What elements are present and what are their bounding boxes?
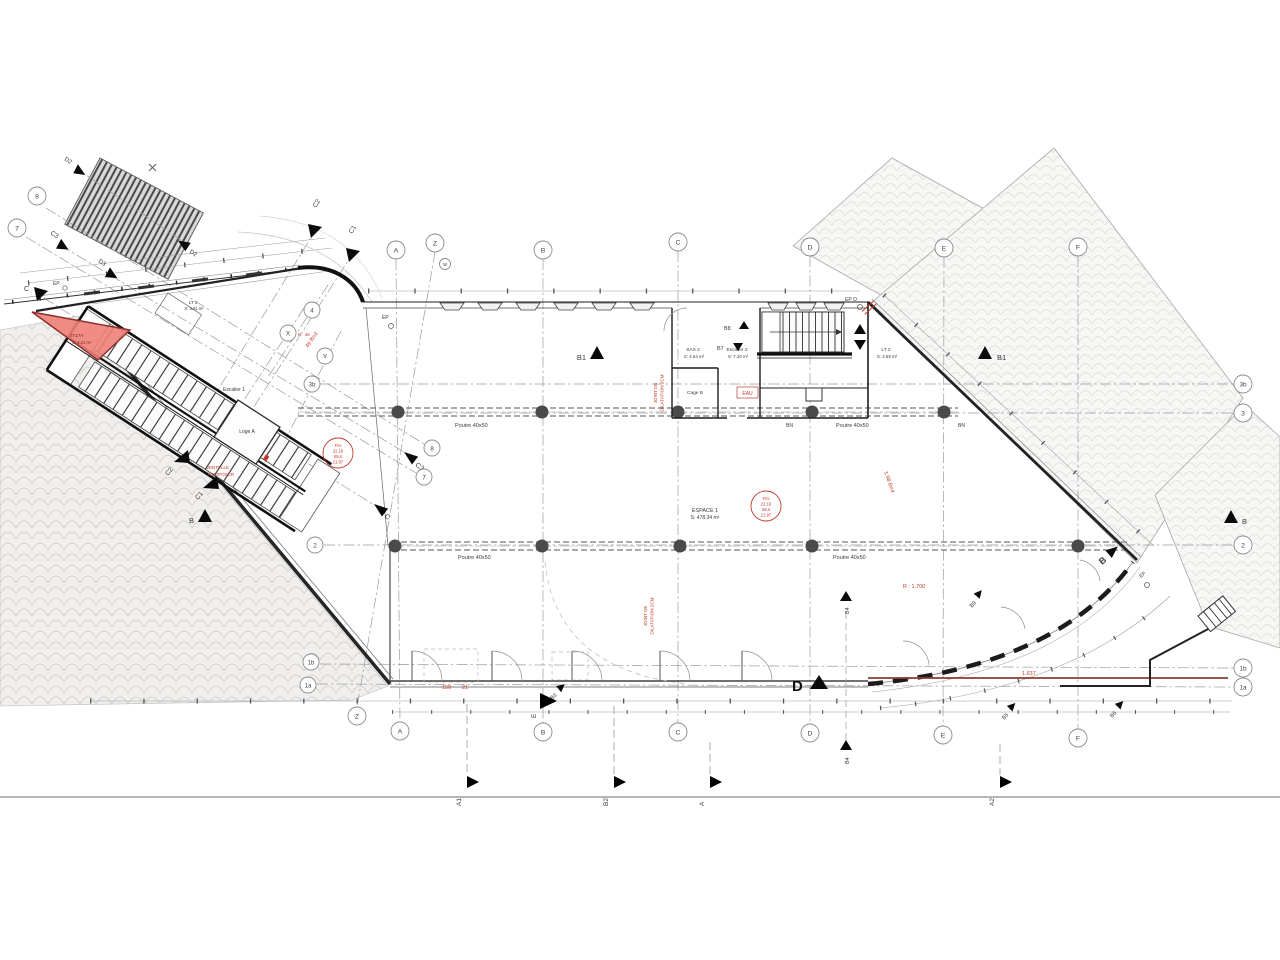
level-fini-value: 22.16 bbox=[761, 502, 772, 507]
marker-b8: B8 bbox=[724, 326, 731, 332]
marker-c2-top: C2 bbox=[312, 198, 323, 209]
grid-bubble-bot-f: F bbox=[1076, 736, 1080, 743]
joint-text: JOINT DE bbox=[653, 383, 658, 404]
grid-bubble-left-7: 7 bbox=[15, 226, 19, 233]
level-198: 1.98 Brut bbox=[882, 471, 895, 494]
grid-bubble-bot-z: Z bbox=[355, 714, 359, 721]
column bbox=[674, 540, 687, 553]
joint-dilatation-1: JOINT DE DILATATION 2CM bbox=[653, 374, 665, 411]
lt1-area: S: 3.61 m² bbox=[184, 306, 204, 311]
floor-plan-canvas: Poutre 40x50 Poutre 40x50 Poutre 40x50 P… bbox=[0, 0, 1280, 960]
grid-bubble-right-3b: 3b bbox=[1239, 382, 1247, 389]
grid-bubble-mid-7: 7 bbox=[422, 475, 426, 482]
svg-text:B9: B9 bbox=[969, 600, 978, 609]
section-label-b2: B2 bbox=[603, 798, 610, 806]
grid-bubble-bot-e: E bbox=[941, 733, 946, 740]
svg-text:B4: B4 bbox=[845, 757, 851, 764]
bn-label: BN bbox=[786, 423, 793, 429]
grid-bubble-top-b: B bbox=[541, 248, 546, 255]
floor-plan-drawing: Poutre 40x50 Poutre 40x50 Poutre 40x50 P… bbox=[0, 0, 1280, 960]
bottom-section-cuts: A1 B2 A A2 bbox=[0, 704, 1280, 806]
joint-text: JOINT DE bbox=[643, 606, 648, 627]
demo-area: S: 3.21 m² bbox=[72, 340, 92, 345]
espace1-area: S: 478.34 m² bbox=[691, 515, 720, 521]
joint-text: DILATATION 2CM bbox=[650, 597, 655, 634]
ep-o-label: EP O bbox=[845, 297, 857, 303]
ventelle-note-1: VENTELLE bbox=[206, 465, 229, 470]
ventelle-note-2: A DEPOSER bbox=[208, 472, 235, 477]
lt2-name: LT 2 bbox=[881, 347, 890, 353]
beam-label: Poutre 40x50 bbox=[836, 423, 869, 429]
level-brut: Brut bbox=[762, 507, 771, 512]
loge-a-label: Loge A bbox=[239, 429, 255, 435]
grid-bubble-right-1a: 1a bbox=[1239, 685, 1247, 692]
grid-bubble-mid-3b: 3b bbox=[309, 383, 316, 389]
eau-note: EAU bbox=[737, 387, 758, 398]
k46-note: K : 46 bbox=[298, 332, 310, 337]
bn-label: BN bbox=[958, 423, 965, 429]
roof-building bbox=[65, 158, 204, 279]
beam-label: Poutre 40x50 bbox=[455, 423, 488, 429]
column bbox=[806, 540, 819, 553]
marker-b7: B7 bbox=[717, 346, 724, 352]
svg-text:E: E bbox=[531, 713, 538, 718]
marker-b9: B9 bbox=[966, 588, 987, 610]
lt2-area: S: 4.59 m² bbox=[877, 354, 898, 359]
marker-b1-right: B1 bbox=[997, 353, 1006, 362]
grid-bubble-mid-2: 2 bbox=[313, 543, 317, 550]
column bbox=[672, 406, 685, 419]
grid-bubble-mid-x: X bbox=[286, 331, 291, 338]
beam-label: Poutre 40x50 bbox=[458, 555, 491, 561]
marker-d2-top: D2 bbox=[61, 157, 88, 180]
grid-bubble-mid-8: 8 bbox=[430, 446, 434, 453]
grid-bubble-bot-a: A bbox=[398, 729, 403, 736]
grid-bubble-top-w: w bbox=[443, 262, 447, 268]
grid-bubble-top-e: E bbox=[942, 246, 947, 253]
svg-text:D2: D2 bbox=[188, 249, 198, 259]
marker-b4-lower: B4 bbox=[845, 757, 851, 764]
marker-e: E bbox=[531, 713, 538, 718]
section-label-a2: A2 bbox=[989, 798, 996, 806]
marker-b6: B6 bbox=[1106, 698, 1127, 719]
marker-b1-left: B1 bbox=[577, 353, 586, 362]
beam-1 bbox=[298, 406, 958, 419]
espace1-name: ESPACE 1 bbox=[692, 508, 719, 514]
sas2-name: SAS 2 bbox=[686, 347, 700, 353]
level-fini: Fini bbox=[335, 443, 342, 448]
grid-bubble-right-1b: 1b bbox=[1239, 666, 1247, 673]
grid-bubble-right-3: 3 bbox=[1241, 411, 1245, 418]
column bbox=[1072, 540, 1085, 553]
marker-d-big: D bbox=[792, 678, 803, 695]
joint-dilatation-2: JOINT DE DILATATION 2CM bbox=[643, 597, 655, 634]
svg-text:EAU: EAU bbox=[742, 391, 753, 397]
dim-21: 21 bbox=[462, 685, 468, 691]
marker-c-topleft: C bbox=[24, 286, 29, 293]
level-fini: Fini bbox=[763, 496, 770, 501]
radius-note: R : 1.700 bbox=[903, 584, 925, 590]
marker-b-rotated: B bbox=[1097, 554, 1109, 566]
grid-bubble-bot-d: D bbox=[808, 731, 813, 738]
roof-antenna-icon bbox=[149, 164, 156, 171]
svg-text:D3: D3 bbox=[97, 259, 107, 269]
escalier2-area: S: 7.20 m² bbox=[728, 354, 749, 359]
svg-text:B5: B5 bbox=[1001, 712, 1010, 721]
facade-windows bbox=[84, 273, 844, 310]
column bbox=[938, 406, 951, 419]
svg-text:C: C bbox=[383, 513, 391, 522]
svg-text:D2: D2 bbox=[63, 157, 73, 167]
level-fini-value: 22.16 bbox=[333, 449, 344, 454]
grid-bubble-top-a: A bbox=[394, 248, 399, 255]
grid-bubble-top-z: Z bbox=[433, 241, 437, 248]
svg-text:C2: C2 bbox=[312, 198, 323, 209]
joint-text: DILATATION 2CM bbox=[660, 374, 665, 411]
svg-text:1.98 Brut: 1.98 Brut bbox=[882, 471, 895, 494]
beam-2 bbox=[389, 540, 1131, 553]
grid-bubble-top-f: F bbox=[1076, 245, 1080, 252]
demo-name: 2T17A bbox=[70, 333, 83, 338]
column bbox=[536, 406, 549, 419]
grid-bubble-left-8: 8 bbox=[35, 194, 39, 201]
ep-label: EP bbox=[1138, 570, 1147, 579]
dim-1637: 1.637 bbox=[1022, 671, 1036, 677]
svg-text:C1: C1 bbox=[348, 224, 359, 235]
grid-bubble-bot-c: C bbox=[676, 730, 681, 737]
marker-c1-top: C1 bbox=[348, 224, 359, 235]
section-label-a: A bbox=[699, 801, 706, 806]
ep-label: EP bbox=[53, 281, 60, 287]
level-circle-2: Fini 22.16 Brut 21.97 bbox=[751, 491, 781, 521]
marker-b5: B5 bbox=[998, 700, 1019, 721]
marker-c-mid: C bbox=[370, 500, 393, 522]
marker-b-right: B bbox=[1242, 517, 1247, 526]
svg-text:C3: C3 bbox=[49, 230, 60, 241]
grid-bubble-top-c: C bbox=[676, 240, 681, 247]
column bbox=[536, 540, 549, 553]
grid-bubble-bot-b: B bbox=[541, 730, 546, 737]
level-circle-1: Fini 22.16 Brut 21.97 bbox=[323, 438, 353, 468]
grid-bubble-right-2: 2 bbox=[1241, 543, 1245, 550]
escalier1-label: Escalier 1 bbox=[223, 387, 245, 393]
grid-bubble-mid-1b: 1b bbox=[308, 661, 315, 667]
stair-escalier-2 bbox=[757, 312, 852, 358]
ep-label: EP bbox=[382, 315, 389, 321]
cage-b-label: Cage B bbox=[687, 390, 703, 396]
column bbox=[392, 406, 405, 419]
beam-label: Poutre 40x50 bbox=[833, 555, 866, 561]
level-brut-value: 21.97 bbox=[333, 460, 344, 465]
section-label-a1: A1 bbox=[456, 798, 463, 806]
level-brut: Brut bbox=[334, 454, 343, 459]
sas2-area: S: 4.64 m² bbox=[684, 354, 705, 359]
grid-bubble-top-d: D bbox=[808, 245, 813, 252]
marker-b-left: B bbox=[189, 516, 194, 525]
lt1-name: LT 1 bbox=[189, 300, 198, 305]
column bbox=[806, 406, 819, 419]
level-brut-value: 21.97 bbox=[761, 513, 772, 518]
grid-bubble-mid-y: Y bbox=[323, 354, 328, 361]
grid-bubble-mid-4: 4 bbox=[310, 308, 314, 315]
grid-bubble-mid-1a: 1a bbox=[305, 684, 312, 690]
dim-150: 150 bbox=[442, 685, 451, 691]
